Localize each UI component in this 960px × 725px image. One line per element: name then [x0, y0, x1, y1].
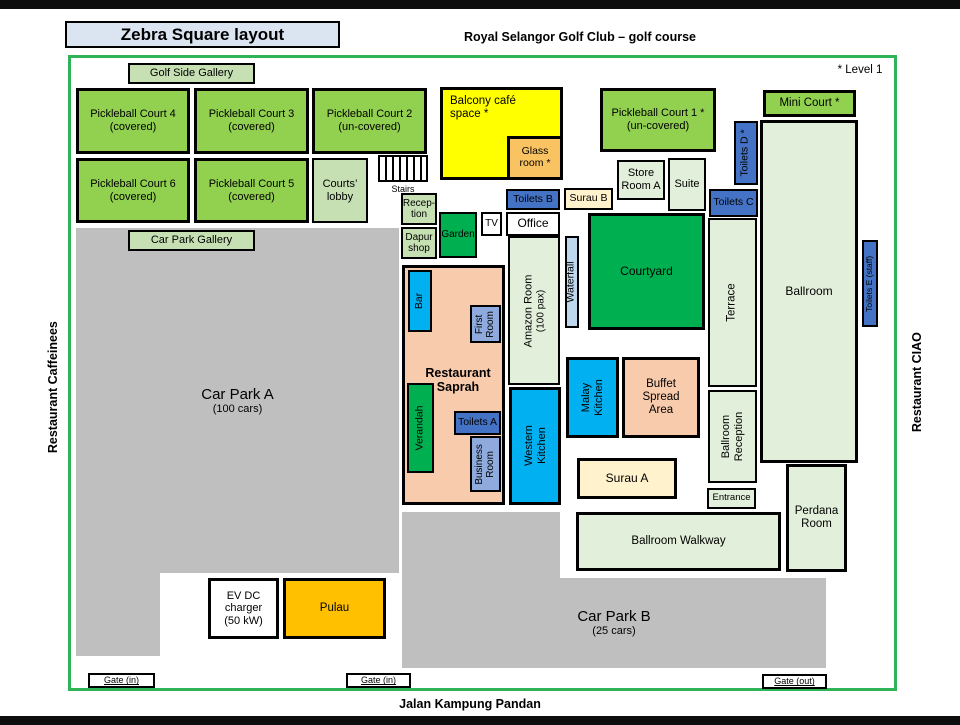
room-ballroom-reception: BallroomReception — [708, 390, 757, 483]
room-amazon-room: Amazon Room(100 pax) — [508, 236, 560, 385]
level-note: * Level 1 — [825, 64, 895, 78]
room-pickleball-court-4: Pickleball Court 4(covered) — [76, 88, 190, 154]
room-western-kitchen: WesternKitchen — [509, 387, 561, 505]
room-waterfall: Waterfall — [565, 236, 579, 328]
room-store-room-a: StoreRoom A — [617, 160, 665, 200]
room-courtyard: Courtyard — [588, 213, 705, 330]
gate-out-east: Gate (out) — [762, 674, 827, 689]
room-pickleball-court-5: Pickleball Court 5(covered) — [194, 158, 309, 223]
room-toilets-a: Toilets A — [454, 411, 501, 435]
room-business-room: BusinessRoom — [470, 436, 501, 492]
room-reception: Recep-tion — [401, 193, 437, 225]
car-park-b-upper-area — [402, 512, 560, 578]
room-bar: Bar — [408, 270, 432, 332]
room-first-room: FirstRoom — [470, 305, 501, 343]
restaurant-ciao-label: Restaurant CIAO — [909, 320, 925, 444]
golf-club-caption: Royal Selangor Golf Club – golf course — [440, 28, 720, 46]
room-perdana-room: PerdanaRoom — [786, 464, 847, 572]
room-verandah: Verandah — [407, 383, 434, 473]
room-car-park-b: Car Park B (25 cars) — [402, 578, 826, 668]
room-toilets-c: Toilets C — [709, 189, 758, 217]
room-tv: TV — [481, 212, 502, 236]
room-glass-room: Glassroom * — [507, 136, 563, 180]
room-dapur-shop: Dapurshop — [401, 227, 437, 259]
room-pulau: Pulau — [283, 578, 386, 639]
room-suite: Suite — [668, 158, 706, 211]
room-pickleball-court-2: Pickleball Court 2(un-covered) — [312, 88, 427, 154]
room-car-park-a: Car Park A (100 cars) — [76, 228, 399, 573]
bottom-black-bar — [0, 716, 960, 725]
restaurant-caffeinees-label: Restaurant Caffeinees — [45, 300, 61, 474]
car-park-a-extension — [76, 573, 160, 656]
room-courts-lobby: Courts’lobby — [312, 158, 368, 223]
room-surau-a: Surau A — [577, 458, 677, 499]
room-malay-kitchen: MalayKitchen — [566, 357, 619, 438]
room-toilets-d: Toilets D * — [734, 121, 758, 185]
room-ballroom-walkway: Ballroom Walkway — [576, 512, 781, 571]
room-toilets-b: Toilets B — [506, 189, 560, 210]
room-surau-b: Surau B — [564, 188, 613, 210]
floor-plan-page: { "header": { "title": "Zebra Square lay… — [0, 0, 960, 725]
room-office: Office — [506, 212, 560, 236]
road-label: Jalan Kampung Pandan — [370, 695, 570, 713]
room-stairs — [378, 155, 428, 182]
room-buffet-spread-area: BuffetSpreadArea — [622, 357, 700, 438]
stairs-icon — [380, 157, 426, 180]
room-pickleball-court-6: Pickleball Court 6(covered) — [76, 158, 190, 223]
page-title: Zebra Square layout — [65, 21, 340, 48]
top-black-bar — [0, 0, 960, 9]
room-pickleball-court-3: Pickleball Court 3(covered) — [194, 88, 309, 154]
gate-in-west: Gate (in) — [88, 673, 155, 688]
room-entrance: Entrance — [707, 488, 756, 509]
room-car-park-gallery: Car Park Gallery — [128, 230, 255, 251]
room-toilets-e-staff: Toilets E (staff) — [862, 240, 878, 327]
room-ev-dc-charger: EV DCcharger(50 kW) — [208, 578, 279, 639]
gate-in-center: Gate (in) — [346, 673, 411, 688]
room-mini-court: Mini Court * — [763, 90, 856, 117]
room-garden: Garden — [439, 212, 477, 258]
room-terrace: Terrace — [708, 218, 757, 387]
room-ballroom: Ballroom — [760, 120, 858, 463]
room-pickleball-court-1: Pickleball Court 1 *(un-covered) — [600, 88, 716, 152]
room-golf-side-gallery: Golf Side Gallery — [128, 63, 255, 84]
